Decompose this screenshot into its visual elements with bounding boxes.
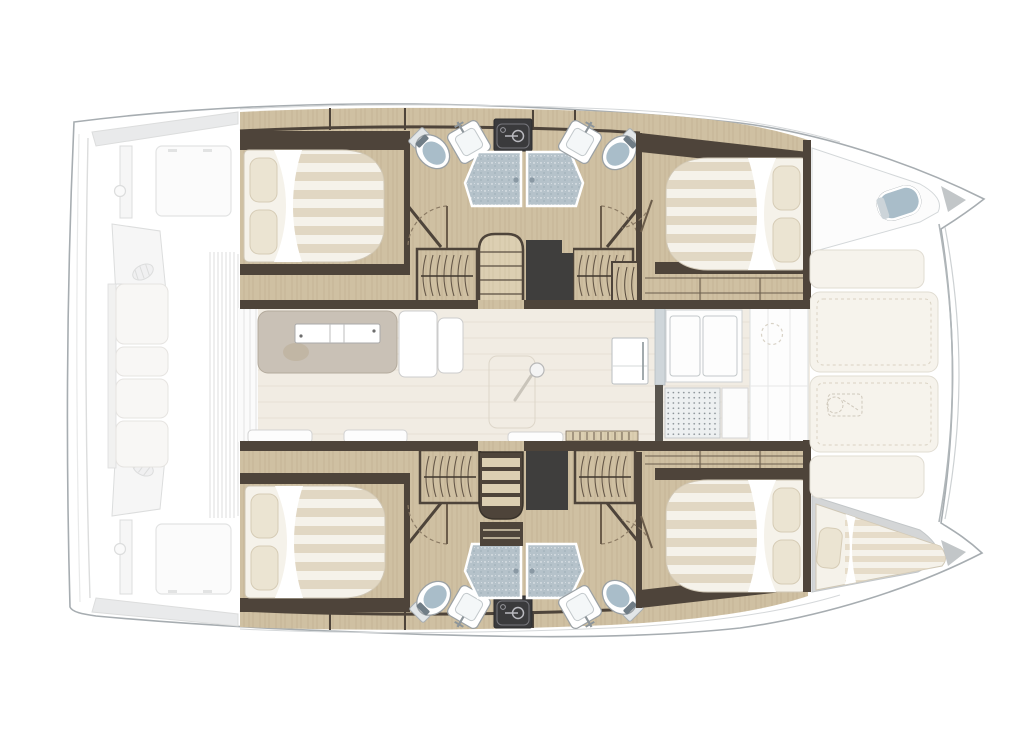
double-bed-aft-lower — [245, 486, 385, 598]
counter-return — [722, 388, 748, 438]
shower-stall — [465, 544, 521, 598]
shower-door-knob — [529, 568, 534, 573]
shower-stall — [527, 152, 583, 206]
companionway-stairs — [479, 234, 523, 306]
salon-aft-bulkhead-upper — [240, 300, 810, 309]
table-hinge — [203, 590, 212, 593]
deck-fill-lower — [115, 544, 126, 555]
catamaran-floorplan — [0, 0, 1024, 731]
bed-foot-wall — [240, 264, 410, 275]
table-latch — [372, 329, 375, 332]
water-heater-upper — [494, 119, 532, 151]
double-bed-aft-upper — [244, 150, 384, 262]
hanging-locker-lower-right — [575, 450, 635, 503]
double-bed-fwd-upper — [666, 158, 806, 270]
bed-foot-wall — [240, 473, 410, 484]
deck-fill-upper — [115, 186, 126, 197]
shelf-unit — [480, 522, 523, 546]
sideboard-shelf — [566, 431, 638, 441]
cockpit-post-lower — [120, 520, 132, 594]
forepeak-bulkhead — [803, 140, 811, 309]
galley-divider — [655, 303, 665, 385]
table-latch — [299, 334, 302, 337]
l-settee-short — [438, 318, 463, 373]
shower-door-knob — [513, 177, 518, 182]
double-bed-fwd-lower — [666, 480, 806, 592]
water-heater-lower — [494, 596, 532, 628]
cockpit-post-upper — [120, 146, 132, 218]
shower-door-knob — [529, 177, 534, 182]
shower-stall — [465, 152, 521, 206]
hanging-locker-lower-left — [420, 450, 480, 503]
cabin-head-wall — [240, 131, 410, 150]
floor-grate — [665, 388, 720, 438]
sunpad — [810, 376, 938, 452]
cockpit-bench-back — [108, 284, 116, 468]
shower-door-knob — [513, 568, 518, 573]
lamp-glow — [283, 343, 309, 361]
void-notch — [562, 240, 573, 253]
sunpad — [810, 292, 938, 372]
mini-locker — [612, 262, 638, 306]
companionway-opening — [478, 300, 524, 309]
companionway-stairs — [479, 452, 523, 519]
l-settee-long — [399, 311, 437, 377]
salon — [238, 294, 810, 445]
companionway-opening — [478, 441, 524, 451]
cockpit-bench — [116, 284, 168, 467]
forward-lounge — [750, 304, 808, 442]
coffee-table — [295, 324, 380, 343]
galley-counter — [666, 310, 742, 382]
cabin-head-wall — [240, 598, 410, 612]
sliding-door — [238, 308, 258, 442]
cockpit-table-lower — [156, 524, 231, 594]
berth-pillow — [816, 527, 843, 569]
storage-void — [526, 448, 568, 510]
sunpad — [810, 250, 924, 288]
table-hinge — [203, 149, 212, 152]
cockpit-table-upper — [156, 146, 231, 216]
table-pedestal — [530, 363, 544, 377]
floorplan-canvas — [0, 0, 1024, 731]
fwd-bed-foot-wall — [655, 468, 806, 480]
table-hinge — [168, 149, 177, 152]
grate-edge — [655, 385, 663, 442]
table-hinge — [168, 590, 177, 593]
sunpad — [810, 456, 924, 498]
hanging-locker-upper-left — [417, 249, 477, 302]
